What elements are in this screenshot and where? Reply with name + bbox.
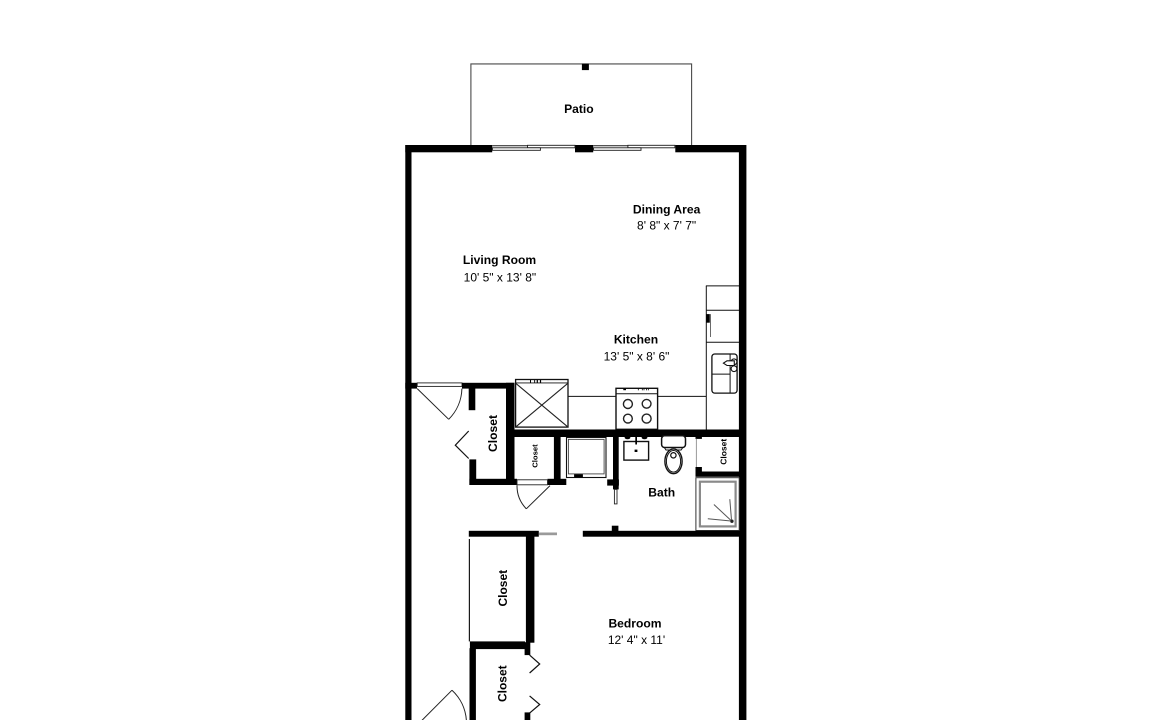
svg-text:8' 8" x 7' 7": 8' 8" x 7' 7" — [637, 219, 696, 233]
svg-text:Closet: Closet — [718, 439, 728, 465]
svg-text:Closet: Closet — [531, 444, 540, 468]
svg-text:13' 5" x 8' 6": 13' 5" x 8' 6" — [604, 349, 670, 363]
svg-text:Patio: Patio — [564, 102, 594, 116]
svg-text:Closet: Closet — [496, 665, 510, 702]
svg-text:10' 5" x 13' 8": 10' 5" x 13' 8" — [464, 270, 536, 284]
svg-text:Bedroom: Bedroom — [608, 617, 661, 631]
svg-text:Kitchen: Kitchen — [614, 332, 658, 346]
svg-text:Bath: Bath — [648, 485, 675, 499]
svg-text:Closet: Closet — [496, 570, 510, 607]
svg-text:Living Room: Living Room — [463, 253, 536, 267]
svg-text:Closet: Closet — [486, 415, 500, 452]
svg-text:Dining Area: Dining Area — [633, 203, 701, 217]
svg-text:12' 4" x 11': 12' 4" x 11' — [608, 633, 665, 647]
